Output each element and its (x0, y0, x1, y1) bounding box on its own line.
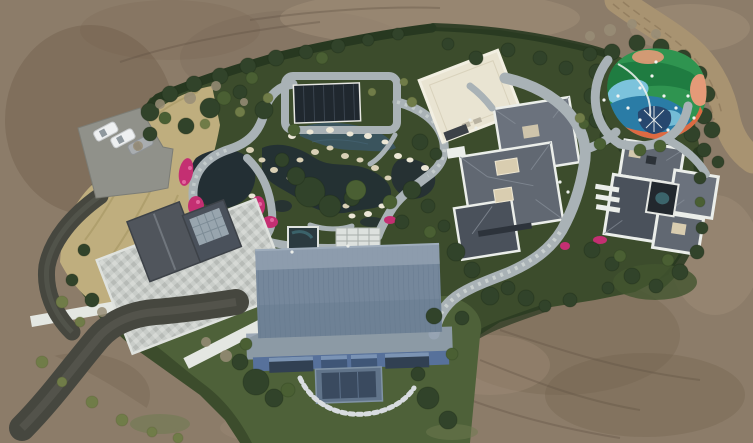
stone-dot (566, 190, 569, 193)
tree (672, 264, 688, 280)
tree (246, 72, 258, 84)
tree (159, 112, 171, 124)
shrub (147, 427, 157, 437)
tree (501, 43, 515, 57)
tree (421, 199, 435, 213)
pergola-deck (336, 228, 380, 248)
tree (186, 76, 202, 92)
tree (602, 282, 614, 294)
tree (395, 215, 409, 229)
villa-skylight (494, 187, 514, 203)
tree (584, 242, 600, 258)
barn-roof-shadowband (257, 299, 442, 338)
tree (346, 180, 366, 200)
tree (331, 39, 345, 53)
tree (240, 58, 256, 74)
shrub (86, 396, 98, 408)
tree (417, 387, 439, 409)
tree (162, 86, 178, 102)
tree (430, 148, 442, 160)
shrub (200, 119, 210, 129)
shrub (57, 377, 67, 387)
tree (288, 124, 300, 136)
tree (712, 156, 724, 168)
mossy-dirt-patch (130, 414, 190, 434)
tree (178, 118, 194, 134)
tree (446, 348, 458, 360)
shrub (235, 107, 245, 117)
shrub (116, 414, 128, 426)
tree (594, 138, 606, 150)
tree (392, 28, 404, 40)
tree (426, 308, 442, 324)
tree (614, 250, 626, 262)
tree (662, 254, 674, 266)
bare-shrub (585, 31, 595, 41)
tree (438, 220, 450, 232)
shrub (75, 317, 85, 327)
tree (704, 122, 720, 138)
tree (411, 367, 425, 381)
tree (447, 243, 465, 261)
tree (319, 195, 341, 217)
plunge-pool (288, 227, 318, 249)
shrub (173, 433, 183, 443)
bare-shrub (604, 24, 616, 36)
tree (200, 98, 220, 118)
tree (281, 383, 295, 397)
tree (533, 51, 547, 65)
barn-bay-window (315, 367, 382, 403)
tree (518, 290, 534, 306)
tree (583, 47, 597, 61)
tree (287, 167, 305, 185)
shrub (400, 78, 408, 86)
tree (464, 262, 480, 278)
tree (696, 222, 708, 234)
villa-skylight (522, 124, 540, 138)
bare-shrub (184, 92, 196, 104)
stone-dot (558, 180, 561, 183)
bare-shrub (133, 141, 143, 151)
shrub (263, 93, 273, 103)
tree (232, 354, 248, 370)
tree (78, 244, 90, 256)
villa-skylight (671, 222, 687, 235)
villa-dark-vent (646, 155, 657, 164)
tree (143, 127, 157, 141)
tree (654, 140, 666, 152)
shrub (575, 113, 585, 123)
tree (501, 281, 515, 295)
shrub (407, 97, 417, 107)
tree (455, 311, 469, 325)
bare-shrub (201, 337, 211, 347)
tree (563, 293, 577, 307)
tree (243, 369, 269, 395)
tree (233, 85, 247, 99)
tree (316, 52, 328, 64)
tree (85, 293, 99, 307)
bare-shrub (651, 29, 661, 39)
tree (539, 300, 551, 312)
shrub (36, 356, 48, 368)
play-swirl-salmon (632, 50, 664, 64)
tree (695, 197, 705, 207)
aerial-photo-canvas (0, 0, 753, 443)
villa-stair-strips (592, 184, 624, 213)
bare-shrub (155, 99, 165, 109)
tree (649, 279, 663, 293)
tree (66, 274, 78, 286)
tree (299, 45, 313, 59)
tree (439, 411, 457, 429)
tree (424, 226, 436, 238)
tree (690, 245, 704, 259)
tree (217, 91, 231, 105)
tree (403, 181, 421, 199)
stone-dot (474, 126, 477, 129)
tree (383, 195, 397, 209)
tree (469, 51, 483, 65)
tree (624, 268, 640, 284)
tree (634, 144, 646, 156)
tree (362, 34, 374, 46)
stone-dot (346, 244, 349, 247)
bare-shrub (97, 307, 107, 317)
tree (240, 338, 252, 350)
tree (275, 153, 289, 167)
bare-shrub (240, 98, 248, 106)
garden-pavilion (293, 83, 360, 123)
bare-shrub (627, 19, 637, 29)
shrub (368, 88, 376, 96)
stone-dot (468, 118, 471, 121)
tree (697, 143, 711, 157)
tree (442, 38, 454, 50)
tree (255, 101, 273, 119)
villa-skylight (495, 158, 519, 175)
shrub (56, 296, 68, 308)
tree (268, 50, 284, 66)
bare-shrub (220, 350, 232, 362)
stone-dot (290, 250, 293, 253)
tree (481, 287, 499, 305)
tree (265, 389, 283, 407)
aerial-photo (0, 0, 753, 443)
bare-shrub (211, 81, 221, 91)
tree (559, 61, 573, 75)
tree (412, 134, 428, 150)
tree (694, 172, 706, 184)
